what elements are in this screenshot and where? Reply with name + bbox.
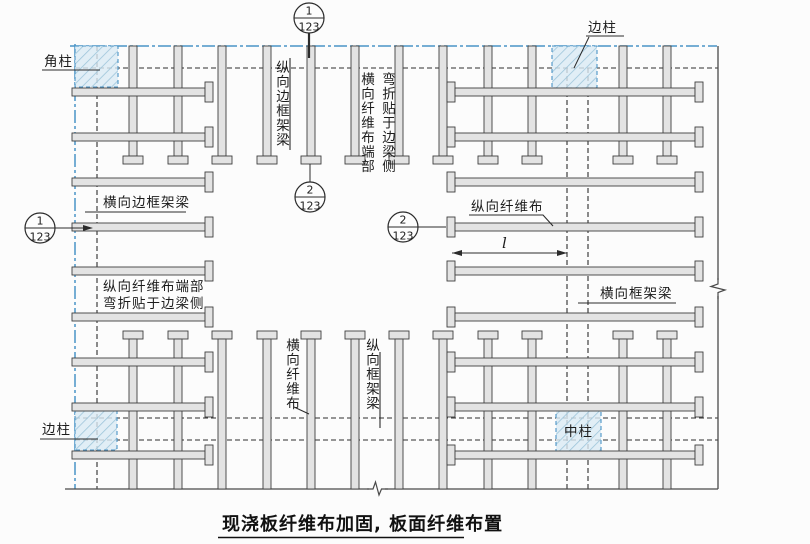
fiber-strip-segment [168, 331, 188, 339]
fiber-strip-segment [301, 331, 321, 339]
callout-number: 1 [306, 5, 313, 18]
fiber-strip-segment [455, 88, 695, 96]
label-transverse-frame-beam: 横向框架梁 [600, 286, 673, 302]
fiber-strip-segment [263, 339, 271, 489]
callout-number: 2 [400, 214, 407, 227]
label-edge-column-left: 边柱 [42, 422, 71, 438]
fiber-strip-segment [307, 46, 315, 156]
fiber-strip-segment [695, 397, 703, 417]
fiber-strip-segment [212, 331, 232, 339]
fiber-strip-segment [478, 331, 498, 339]
fiber-strip-segment [205, 172, 213, 192]
label-transverse-fiber-cloth: 横向纤维布 [283, 338, 300, 411]
fiber-strip-segment [205, 217, 213, 237]
fiber-strip-segment [205, 445, 213, 465]
dimension-line [452, 250, 567, 256]
callout-sheet: 123 [300, 200, 321, 213]
fiber-strip-segment [257, 156, 277, 164]
fiber-strip-segment [455, 178, 695, 186]
fiber-strip-segment [72, 223, 205, 231]
fiber-strip-segment [433, 156, 453, 164]
fiber-strip-segment [695, 127, 703, 147]
fiber-strip-segment [72, 88, 205, 96]
fiber-strip-segment [345, 331, 365, 339]
detail-callout-1-left: 1 123 [25, 213, 93, 244]
fiber-strip-segment [389, 331, 409, 339]
fiber-strip-segment [205, 397, 213, 417]
fiber-strip-segment [455, 267, 695, 275]
fiber-strip-segment [447, 397, 455, 417]
drawing-title-text: 现浇板纤维布加固, 板面纤维布置 [222, 513, 503, 535]
fiber-strip-segment [395, 339, 403, 489]
fiber-strip-segment [447, 352, 455, 372]
fiber-strip-segment [657, 156, 677, 164]
fiber-strip-segment [433, 331, 453, 339]
detail-callout-2-mid: 2 123 [388, 212, 446, 243]
label-transverse-fiber-end-note-col2: 弯折贴于边梁侧 [379, 71, 396, 174]
callout-number: 1 [37, 215, 44, 228]
fiber-strip-segment [695, 352, 703, 372]
fiber-strip-segment [447, 445, 455, 465]
fiber-strip-segment [439, 339, 447, 489]
fiber-strip-segment [205, 307, 213, 327]
fiber-strip-segment [447, 307, 455, 327]
label-longitudinal-fiber-end-note-line2: 弯折贴于边梁侧 [103, 295, 205, 312]
callout-sheet: 123 [299, 21, 320, 34]
slab-plan-drawing: 1 123 2 123 1 123 2 123 角柱 边柱 纵向边框架梁 横向纤… [0, 0, 810, 544]
callout-sheet: 123 [30, 231, 51, 244]
label-length-dimension: l [502, 234, 507, 252]
drawing-title: 现浇板纤维布加固, 板面纤维布置 [218, 513, 503, 538]
fiber-strip-segment [72, 133, 205, 141]
callout-number: 2 [307, 184, 314, 197]
fiber-strip-segment [455, 223, 695, 231]
fiber-strip-segment [695, 217, 703, 237]
fiber-strip-segment [455, 451, 695, 459]
fiber-strip-segment [613, 331, 633, 339]
fiber-strip-segment [455, 358, 695, 366]
fiber-strip-segment [257, 331, 277, 339]
fiber-strip-segment [455, 133, 695, 141]
fiber-strip-segment [447, 127, 455, 147]
fiber-strip-segment [218, 46, 226, 156]
fiber-strip-segment [695, 307, 703, 327]
label-longitudinal-frame-beam: 纵向框架梁 [363, 338, 380, 411]
fiber-strip-segment [72, 451, 205, 459]
fiber-strip-segment [695, 82, 703, 102]
fiber-strip-segment [205, 352, 213, 372]
fiber-strip-segment [168, 156, 188, 164]
fiber-strip-segment [218, 339, 226, 489]
detail-callout-1-top: 1 123 [294, 3, 324, 58]
fiber-strip-segment [657, 331, 677, 339]
fiber-strip-segment [72, 358, 205, 366]
fiber-strip-segment [72, 267, 205, 275]
fiber-strip-segment [455, 313, 695, 321]
column-edge-left [75, 410, 117, 450]
fiber-strip-segment [263, 46, 271, 156]
fiber-strip-segment [72, 178, 205, 186]
callout-sheet: 123 [393, 230, 414, 243]
fiber-strip-segment [695, 172, 703, 192]
fiber-strip-segment [522, 331, 542, 339]
column-corner [75, 46, 118, 87]
fiber-strip-segment [72, 313, 205, 321]
label-transverse-fiber-end-note-col1: 横向纤维布端部 [358, 72, 375, 174]
fiber-strip-segment [447, 217, 455, 237]
fiber-strip-segment [212, 156, 232, 164]
fiber-strip-segment [205, 82, 213, 102]
fiber-strip-segment [72, 403, 205, 411]
label-corner-column: 角柱 [44, 54, 73, 70]
columns [75, 46, 601, 452]
fiber-strip-segment [205, 261, 213, 281]
fiber-strip-segment [301, 156, 321, 164]
label-longitudinal-edge-frame-beam: 纵向边框架梁 [273, 60, 290, 147]
fiber-strip-segment [395, 46, 403, 156]
label-edge-column-top: 边柱 [588, 20, 617, 36]
fiber-strip-segment [455, 403, 695, 411]
fiber-strip-segment [351, 339, 359, 489]
detail-callout-2-top: 2 123 [295, 164, 325, 213]
fiber-strip-segment [478, 156, 498, 164]
fiber-strip-segment [613, 156, 633, 164]
fiber-strip-segment [522, 156, 542, 164]
fiber-strip-segment [123, 331, 143, 339]
label-longitudinal-fiber-cloth: 纵向纤维布 [471, 199, 544, 215]
fiber-strip-segment [447, 82, 455, 102]
label-longitudinal-fiber-end-note-line1: 纵向纤维布端部 [103, 279, 205, 295]
fiber-strip-segment [695, 445, 703, 465]
fiber-strip-segment [205, 127, 213, 147]
fiber-strip-segment [447, 261, 455, 281]
fiber-strip-segment [447, 172, 455, 192]
fiber-strip-segment [123, 156, 143, 164]
label-transverse-edge-frame-beam: 横向边框架梁 [103, 195, 190, 211]
fiber-strip-segment [695, 261, 703, 281]
drawing-canvas: 1 123 2 123 1 123 2 123 角柱 边柱 纵向边框架梁 横向纤… [0, 0, 810, 544]
fiber-strip-segment [439, 46, 447, 156]
label-center-column: 中柱 [564, 424, 593, 440]
